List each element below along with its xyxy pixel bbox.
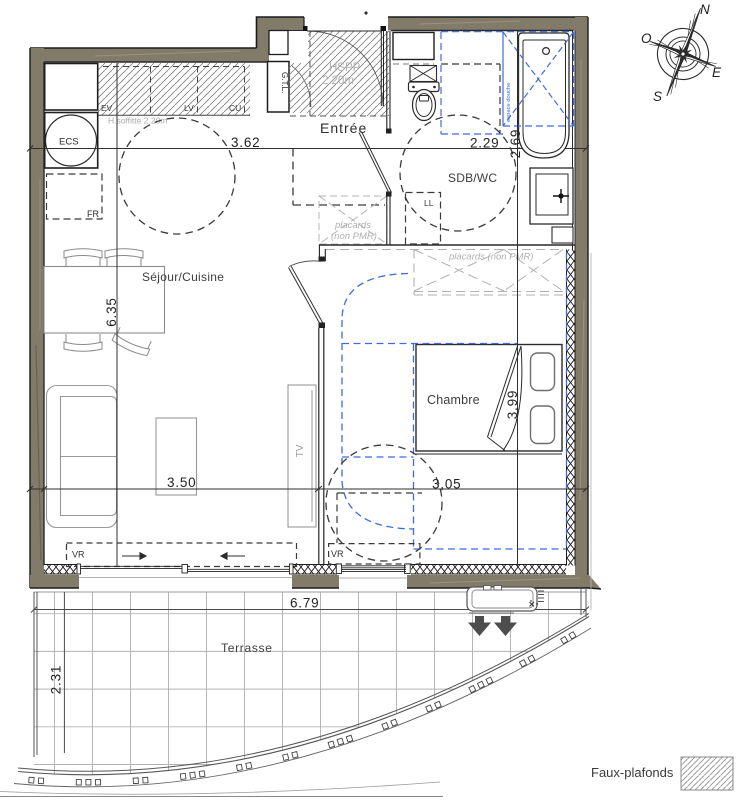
- svg-text:TV: TV: [295, 444, 306, 457]
- svg-text:Terrasse: Terrasse: [221, 641, 273, 655]
- svg-text:CU: CU: [229, 103, 241, 113]
- svg-text:FR: FR: [87, 209, 99, 219]
- svg-text:3,99: 3,99: [505, 390, 520, 419]
- svg-text:G.T.L.: G.T.L.: [280, 72, 289, 93]
- svg-text:3.62: 3.62: [231, 135, 260, 150]
- svg-text:6.35: 6.35: [104, 297, 119, 326]
- svg-text:2.69: 2.69: [508, 129, 523, 158]
- svg-text:(non PMR): (non PMR): [331, 231, 377, 242]
- svg-text:LL: LL: [424, 198, 434, 208]
- svg-text:Entrée: Entrée: [320, 120, 367, 136]
- svg-text:6.79: 6.79: [290, 596, 319, 611]
- svg-text:E: E: [712, 65, 722, 80]
- svg-text:S: S: [653, 89, 662, 104]
- svg-text:VR: VR: [72, 550, 85, 560]
- svg-text:2.29: 2.29: [470, 136, 499, 151]
- svg-text:VR: VR: [331, 549, 344, 559]
- svg-text:2.31: 2.31: [49, 665, 64, 694]
- svg-text:HSPP: HSPP: [329, 62, 361, 74]
- svg-text:espace douche: espace douche: [506, 83, 512, 122]
- svg-text:3.50: 3.50: [167, 475, 196, 490]
- svg-text:ECS: ECS: [59, 137, 79, 148]
- svg-text:Séjour/Cuisine: Séjour/Cuisine: [142, 270, 224, 284]
- svg-text:N: N: [700, 2, 710, 17]
- svg-text:Chambre: Chambre: [427, 393, 480, 407]
- svg-text:2.20m: 2.20m: [322, 75, 354, 87]
- svg-text:SDB/WC: SDB/WC: [448, 171, 497, 185]
- svg-text:3,05: 3,05: [432, 477, 461, 492]
- svg-text:LV: LV: [184, 103, 194, 113]
- svg-text:O: O: [641, 31, 652, 46]
- svg-text:placards (non PMR): placards (non PMR): [448, 252, 533, 263]
- svg-text:Faux-plafonds: Faux-plafonds: [591, 765, 674, 780]
- svg-text:placards: placards: [334, 220, 371, 231]
- svg-text:EV: EV: [101, 103, 113, 113]
